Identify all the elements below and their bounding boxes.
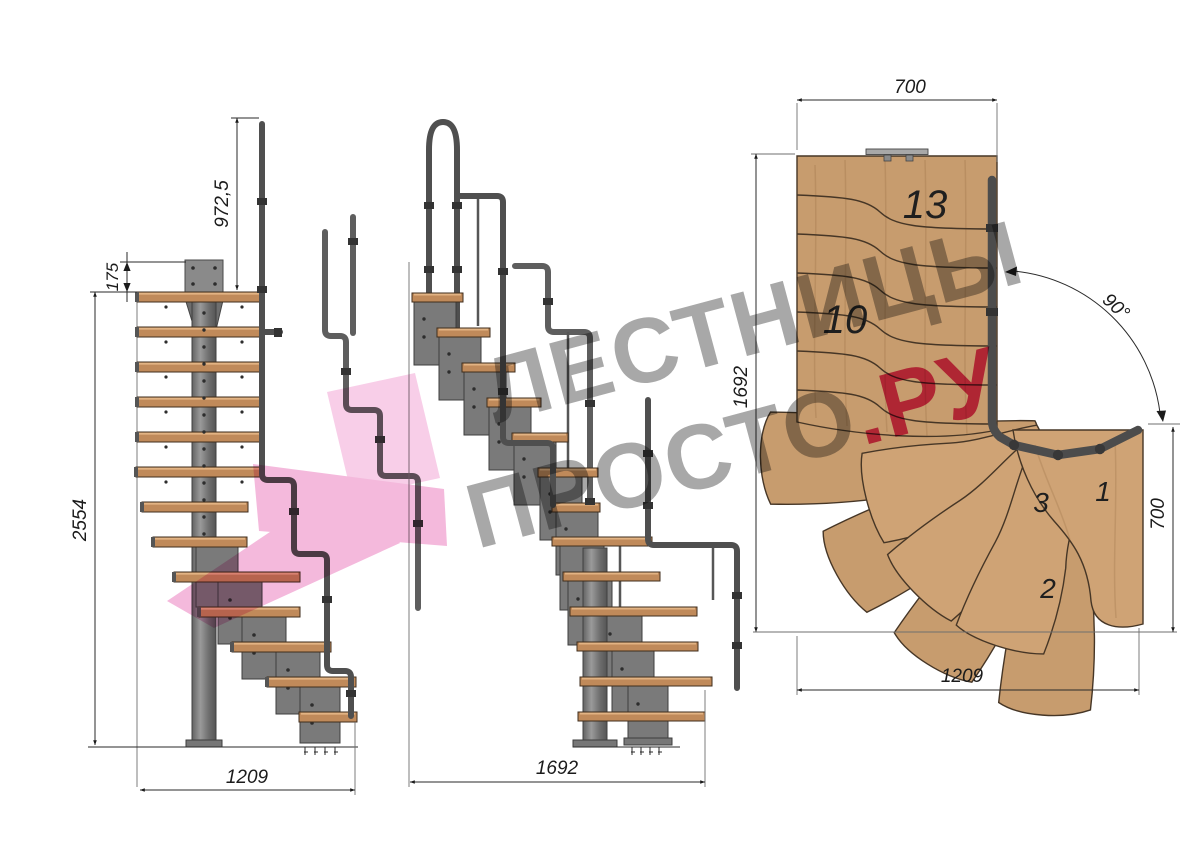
plan-step-1: 1 xyxy=(1095,476,1111,507)
dim-side-rail-height: 972,5 xyxy=(212,180,233,228)
dim-side-run-length: 1209 xyxy=(226,767,269,788)
dim-plan-bottom-length: 1209 xyxy=(941,666,984,687)
plan-step-3: 3 xyxy=(1033,487,1049,518)
plan-step-2: 2 xyxy=(1039,573,1056,604)
dim-plan-turn-angle: 90° xyxy=(1098,289,1134,324)
dim-plan-right-width: 700 xyxy=(1148,498,1169,530)
side-floor-anchors xyxy=(88,747,358,755)
drawing-canvas: 972,5 175 2554 1209 xyxy=(0,0,1200,849)
dim-front-run-length: 1692 xyxy=(536,758,579,779)
side-column-base xyxy=(186,740,222,747)
front-floor-anchors xyxy=(573,747,680,755)
dim-side-total-height: 2554 xyxy=(70,499,91,542)
drawing-page: 972,5 175 2554 1209 xyxy=(0,0,1200,849)
dim-side-top-landing: 175 xyxy=(103,262,122,291)
dim-plan-top-width: 700 xyxy=(894,77,926,98)
